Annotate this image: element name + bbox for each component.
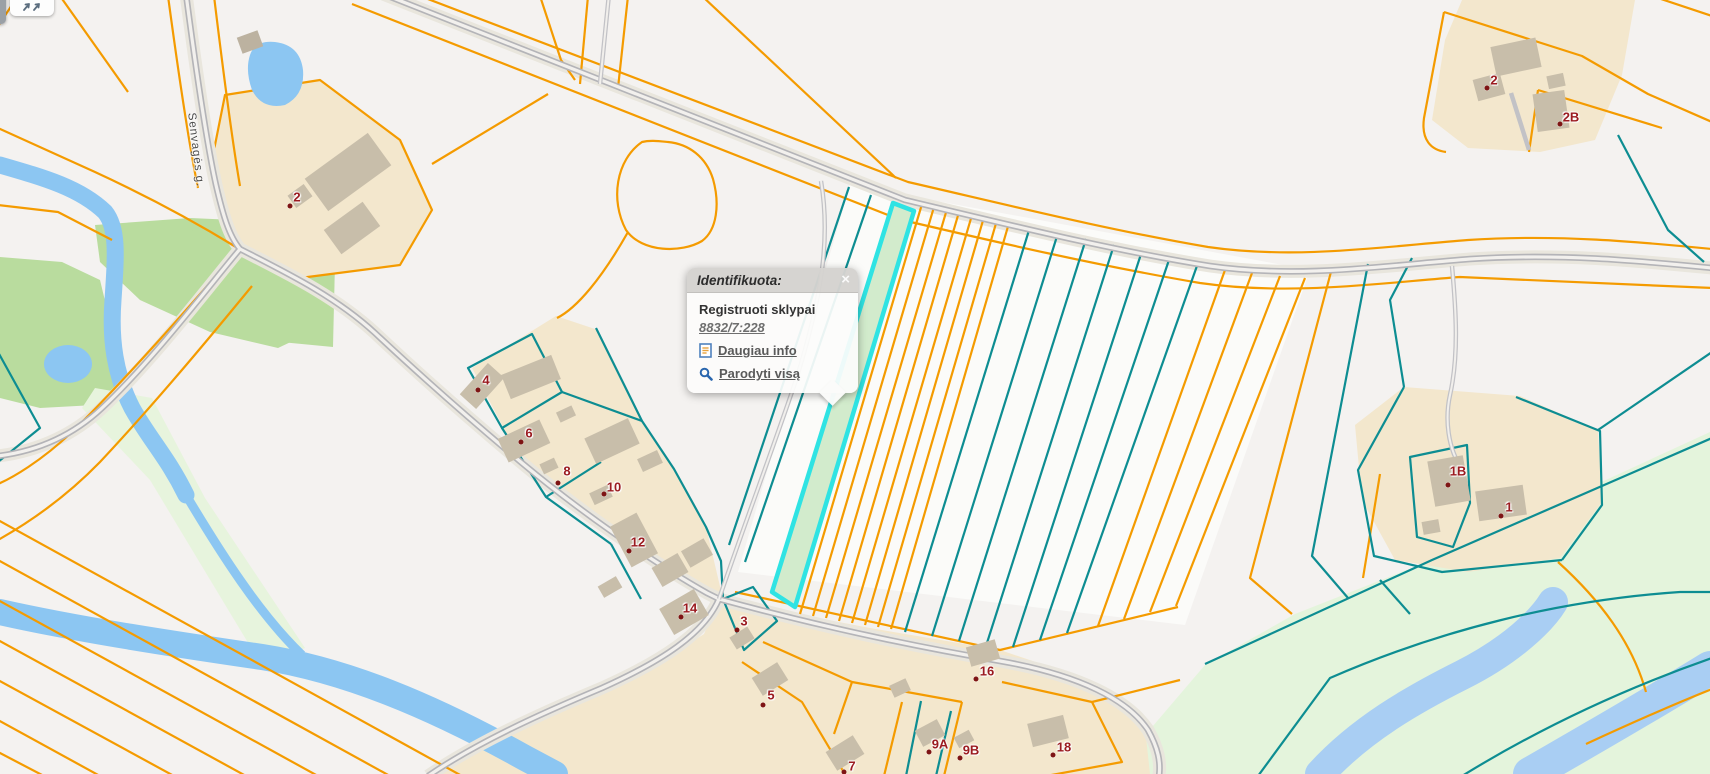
address-dot [602,492,607,497]
address-dot [735,628,740,633]
address-dot [1446,483,1451,488]
address-dot [476,388,481,393]
identify-popup-body: Registruoti sklypai 8832/7:228 Daugiau i… [687,293,858,393]
address-dot [519,440,524,445]
popup-title: Identifikuota: [697,273,782,288]
address-dot [958,756,963,761]
address-dot [1558,122,1563,127]
address-dot [1499,514,1504,519]
identify-popup: Identifikuota: × Registruoti sklypai 883… [687,268,858,393]
more-info-link[interactable]: Daugiau info [718,343,797,358]
address-dot [974,677,979,682]
address-dot [1051,753,1056,758]
magnifier-icon [699,367,713,381]
toolbar-partial-button[interactable] [0,0,6,24]
close-icon[interactable]: × [841,271,850,289]
address-dot [842,770,847,774]
map-viewport[interactable]: 2 4 6 8 10 12 14 3 5 7 9A 9B 16 18 2 2B … [0,0,1710,774]
address-dot [679,615,684,620]
address-dot [556,481,561,486]
identify-popup-header: Identifikuota: × [687,268,858,293]
address-dot [288,204,293,209]
document-icon [699,343,712,358]
address-dot [761,703,766,708]
popup-layer-name: Registruoti sklypai [699,302,846,317]
map-tool-button[interactable] [10,0,54,16]
show-all-link[interactable]: Parodyti visą [719,366,800,381]
pan-arrows-icon [22,1,42,13]
address-dot [1485,86,1490,91]
address-dot [927,750,932,755]
address-dot [627,549,632,554]
parcel-id-link[interactable]: 8832/7:228 [699,320,765,335]
